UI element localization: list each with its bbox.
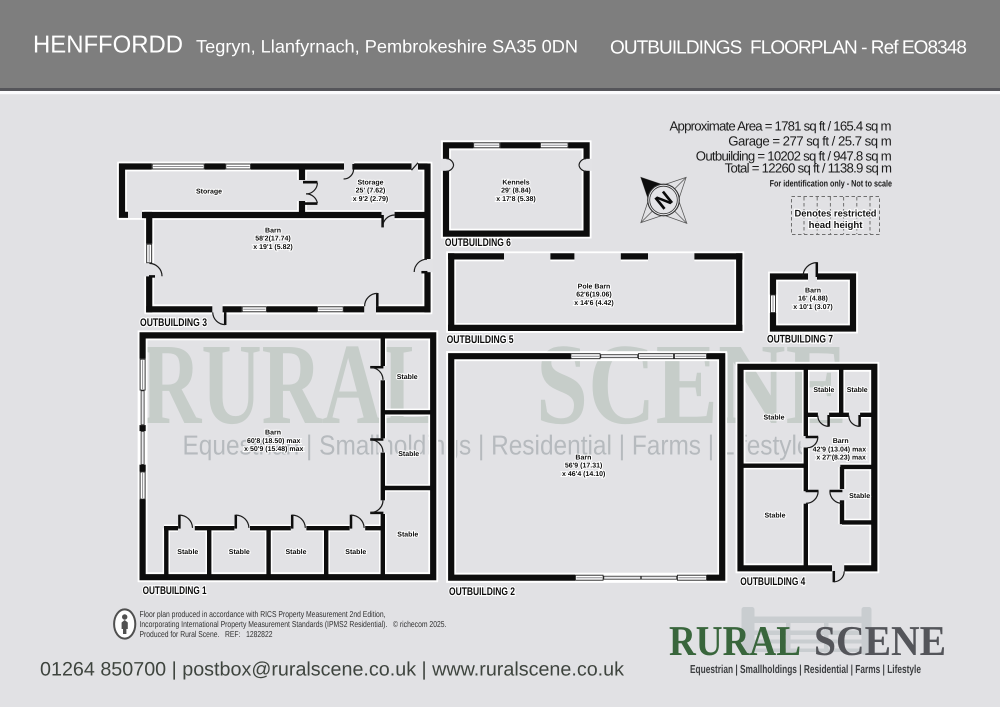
svg-text:Storage: Storage <box>196 188 222 195</box>
svg-text:01264 850700 | postbox@ruralsc: 01264 850700 | postbox@ruralscene.co.uk … <box>40 659 624 681</box>
svg-text:58'2(17.74): 58'2(17.74) <box>255 235 291 243</box>
svg-text:42'9 (13.04) max: 42'9 (13.04) max <box>813 445 867 453</box>
svg-text:Total = 12260 sq ft / 1138.9 s: Total = 12260 sq ft / 1138.9 sq m <box>725 161 892 176</box>
svg-text:Incorporating International Pr: Incorporating International Property Mea… <box>140 619 447 629</box>
svg-text:For identification only - Not: For identification only - Not to scale <box>770 179 892 189</box>
svg-text:x 10'1 (3.07): x 10'1 (3.07) <box>793 303 832 311</box>
svg-text:Garage = 277 sq ft / 25.7 sq m: Garage = 277 sq ft / 25.7 sq m <box>728 134 891 149</box>
svg-text:x 14'6 (4.42): x 14'6 (4.42) <box>574 299 613 307</box>
svg-text:OUTBUILDING 5: OUTBUILDING 5 <box>447 334 514 346</box>
svg-text:x 27'(8.23) max: x 27'(8.23) max <box>816 454 866 462</box>
svg-text:x 17'8 (5.38): x 17'8 (5.38) <box>496 195 535 203</box>
svg-text:Stable: Stable <box>849 492 870 500</box>
svg-text:Stable: Stable <box>813 386 834 394</box>
svg-text:62'6(19.06): 62'6(19.06) <box>576 291 612 299</box>
svg-text:60'8 (18.50) max: 60'8 (18.50) max <box>247 437 301 445</box>
svg-text:Stable: Stable <box>285 548 306 556</box>
svg-text:Stable: Stable <box>763 413 784 421</box>
svg-text:56'9 (17.31): 56'9 (17.31) <box>565 462 602 470</box>
svg-text:Stable: Stable <box>177 548 198 556</box>
svg-text:OUTBUILDING 4: OUTBUILDING 4 <box>740 576 806 588</box>
svg-text:Equestrian | Smallholdings | R: Equestrian | Smallholdings | Residential… <box>690 663 921 676</box>
svg-text:Barn: Barn <box>575 454 591 461</box>
svg-text:Stable: Stable <box>345 548 366 556</box>
svg-text:OUTBUILDING 1: OUTBUILDING 1 <box>143 585 207 597</box>
svg-text:OUTBUILDING 3: OUTBUILDING 3 <box>140 317 207 329</box>
svg-text:OUTBUILDING 6: OUTBUILDING 6 <box>445 237 511 249</box>
svg-text:Stable: Stable <box>397 373 418 381</box>
svg-text:Denotes restricted: Denotes restricted <box>795 209 877 220</box>
svg-text:Tegryn, Llanfyrnach, Pembrokes: Tegryn, Llanfyrnach, Pembrokeshire SA35 … <box>196 37 578 57</box>
svg-text:SCENE: SCENE <box>814 618 946 665</box>
svg-text:Barn: Barn <box>265 430 281 437</box>
svg-text:Floor plan produced in accorda: Floor plan produced in accordance with R… <box>140 609 386 619</box>
svg-text:Kennels: Kennels <box>502 178 529 186</box>
svg-text:Stable: Stable <box>764 512 785 520</box>
svg-text:Pole Barn: Pole Barn <box>578 282 611 290</box>
svg-text:x 50'9 (15.48) max: x 50'9 (15.48) max <box>244 445 303 453</box>
svg-text:RURAL: RURAL <box>669 618 801 665</box>
svg-text:Approximate Area = 1781 sq ft: Approximate Area = 1781 sq ft / 165.4 sq… <box>670 119 892 134</box>
svg-text:Stable: Stable <box>847 386 868 394</box>
svg-text:Barn: Barn <box>265 227 281 234</box>
svg-text:Storage: Storage <box>357 179 383 186</box>
svg-text:OUTBUILDING 2: OUTBUILDING 2 <box>449 586 515 598</box>
svg-text:x 9'2 (2.79): x 9'2 (2.79) <box>353 195 389 203</box>
svg-text:Barn: Barn <box>805 287 821 294</box>
svg-text:29' (8.84): 29' (8.84) <box>501 187 531 195</box>
svg-text:x 46'4 (14.10): x 46'4 (14.10) <box>562 470 605 478</box>
svg-text:16' (4.88): 16' (4.88) <box>798 295 828 303</box>
svg-text:Stable: Stable <box>398 450 419 458</box>
svg-text:OUTBUILDING 7: OUTBUILDING 7 <box>767 334 833 346</box>
svg-text:Barn: Barn <box>833 438 849 445</box>
svg-text:25' (7.62): 25' (7.62) <box>356 187 386 195</box>
svg-text:OUTBUILDINGS FLOORPLAN - Ref: OUTBUILDINGS FLOORPLAN - Ref EO8348 <box>610 38 967 59</box>
svg-text:Produced for Rural Scene. RE: Produced for Rural Scene. REF: 1282822 <box>140 629 273 639</box>
svg-text:Stable: Stable <box>229 548 250 556</box>
svg-text:HENFFORDD: HENFFORDD <box>33 32 183 59</box>
svg-text:Stable: Stable <box>397 530 418 538</box>
svg-text:x 19'1 (5.82): x 19'1 (5.82) <box>253 243 292 251</box>
svg-text:head height: head height <box>809 220 864 231</box>
